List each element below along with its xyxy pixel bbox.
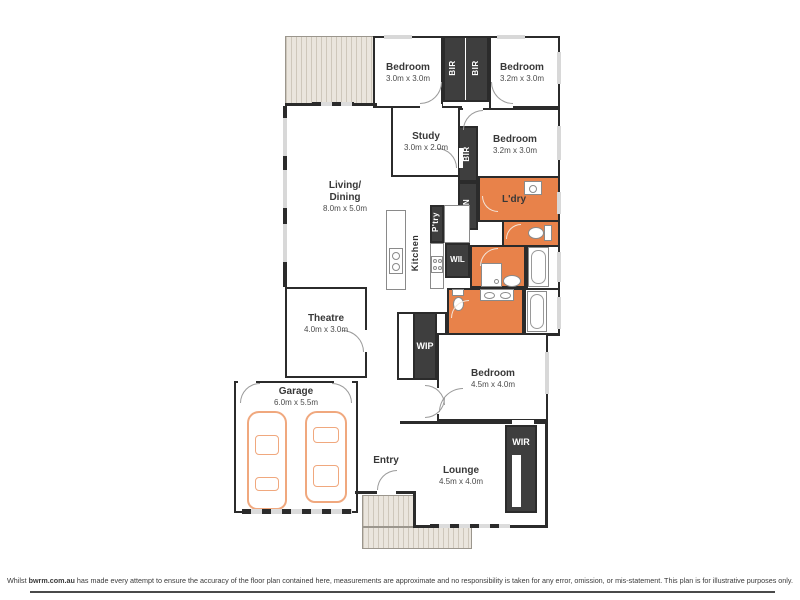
label-bedroom-3: Bedroom 3.2m x 3.0m — [470, 134, 560, 156]
footer-divider — [30, 591, 775, 593]
label-bir-3: BIR — [462, 124, 474, 184]
window — [557, 252, 561, 282]
window — [384, 35, 412, 39]
entry-door-arc — [377, 470, 397, 490]
toilet-icon — [528, 227, 544, 239]
room-dims: 3.0m x 2.0m — [381, 143, 471, 153]
room-name: Bedroom — [470, 134, 560, 146]
label-bedroom-1: Bedroom 3.0m x 3.0m — [363, 62, 453, 84]
car-windshield — [313, 427, 339, 443]
label-wip: WIP — [403, 341, 447, 351]
robe-divider — [465, 38, 466, 100]
door-opening — [420, 104, 442, 108]
window — [557, 192, 561, 214]
washer-drum-icon — [529, 185, 537, 193]
bathtub-icon — [527, 291, 547, 332]
label-study: Study 3.0m x 2.0m — [381, 131, 471, 153]
label-garage: Garage 6.0m x 5.5m — [251, 386, 341, 408]
room-name: Bedroom — [448, 368, 538, 380]
lounge-window-marks — [430, 524, 510, 528]
label-wil: WIL — [445, 255, 470, 264]
door-opening — [491, 104, 513, 108]
porch-hatch-upper — [362, 495, 415, 527]
disclaimer-part2: has made every attempt to ensure the acc… — [75, 576, 793, 585]
room-name: Living/ — [300, 180, 390, 192]
label-ptry: P'try — [431, 192, 443, 252]
kitchen-sink-icon — [389, 248, 403, 274]
room-dims: 4.0m x 3.0m — [281, 325, 371, 335]
label-theatre: Theatre 4.0m x 3.0m — [281, 313, 371, 335]
wall-segment — [396, 491, 415, 494]
window — [497, 35, 525, 39]
room-dims: 3.2m x 3.0m — [477, 74, 567, 84]
bathtub-inner — [530, 294, 544, 329]
bathtub-icon — [528, 247, 549, 287]
room-name: Theatre — [281, 313, 371, 325]
window — [557, 297, 561, 329]
door-opening — [512, 420, 534, 425]
window — [283, 118, 287, 156]
room-name: Bedroom — [363, 62, 453, 74]
burner-icon — [433, 259, 437, 263]
vanity-icon — [480, 289, 514, 301]
label-bedroom-2: Bedroom 3.2m x 3.0m — [477, 62, 567, 84]
wall-segment — [355, 491, 377, 494]
porch-hatch-lower — [362, 527, 472, 549]
cooktop-icon — [431, 256, 443, 273]
toilet-cistern-icon — [544, 225, 552, 241]
floor-plan: Bedroom 3.0m x 3.0m Bedroom 3.2m x 3.0m … — [0, 0, 800, 600]
car-windshield — [255, 435, 279, 455]
car-rear-window — [313, 465, 339, 487]
label-kitchen: Kitchen — [410, 223, 422, 283]
room-dims: 6.0m x 5.5m — [251, 398, 341, 408]
burner-icon — [433, 266, 437, 270]
shower-drain-icon — [494, 279, 499, 284]
alfresco-hatch-area — [285, 36, 375, 104]
burner-icon — [438, 266, 442, 270]
garage-door-marks — [242, 509, 352, 514]
sink-bowl-icon — [392, 263, 400, 271]
window — [283, 170, 287, 208]
disclaimer-part1: Whilst — [7, 576, 29, 585]
window — [545, 352, 549, 394]
room-name: L'dry — [479, 194, 549, 206]
disclaimer-text: Whilst bwrm.com.au has made every attemp… — [0, 576, 800, 585]
room-dims: 4.5m x 4.0m — [416, 477, 506, 487]
wall-segment — [546, 333, 560, 336]
car-icon — [305, 411, 347, 503]
sliding-door-marks — [312, 102, 354, 106]
window — [283, 224, 287, 262]
toilet-cistern-icon — [452, 289, 464, 296]
wir-shelf — [512, 455, 521, 507]
room-dims: 3.2m x 3.0m — [470, 146, 560, 156]
label-living-dining: Living/ Dining 8.0m x 5.0m — [300, 180, 390, 214]
door-opening — [238, 379, 256, 383]
room-name: Lounge — [416, 465, 506, 477]
bathtub-inner — [531, 250, 546, 284]
label-lin: LIN — [462, 176, 474, 236]
door-opening — [334, 379, 352, 383]
room-name: Garage — [251, 386, 341, 398]
wall-segment — [413, 491, 416, 528]
label-bir-1: BIR — [448, 38, 460, 98]
room-dims: 3.0m x 3.0m — [363, 74, 453, 84]
car-icon — [247, 411, 287, 510]
basin-icon — [503, 275, 521, 287]
car-rear-window — [255, 477, 279, 491]
label-entry: Entry — [346, 455, 426, 467]
washing-machine-icon — [524, 181, 542, 195]
room-name: Dining — [300, 192, 390, 204]
room-name: Bedroom — [477, 62, 567, 74]
room-name: Entry — [346, 455, 426, 467]
wall-segment — [545, 421, 548, 528]
disclaimer-brand: bwrm.com.au — [29, 576, 75, 585]
basin-icon — [500, 292, 511, 299]
label-laundry: L'dry — [479, 194, 549, 206]
basin-icon — [484, 292, 495, 299]
label-bir-2: BIR — [471, 38, 483, 98]
room-name: Study — [381, 131, 471, 143]
sink-bowl-icon — [392, 252, 400, 260]
room-dims: 4.5m x 4.0m — [448, 380, 538, 390]
label-wir: WIR — [505, 437, 537, 447]
label-bedroom-4: Bedroom 4.5m x 4.0m — [448, 368, 538, 390]
burner-icon — [438, 259, 442, 263]
room-dims: 8.0m x 5.0m — [300, 204, 390, 214]
shower-icon — [481, 263, 502, 287]
label-lounge: Lounge 4.5m x 4.0m — [416, 465, 506, 487]
